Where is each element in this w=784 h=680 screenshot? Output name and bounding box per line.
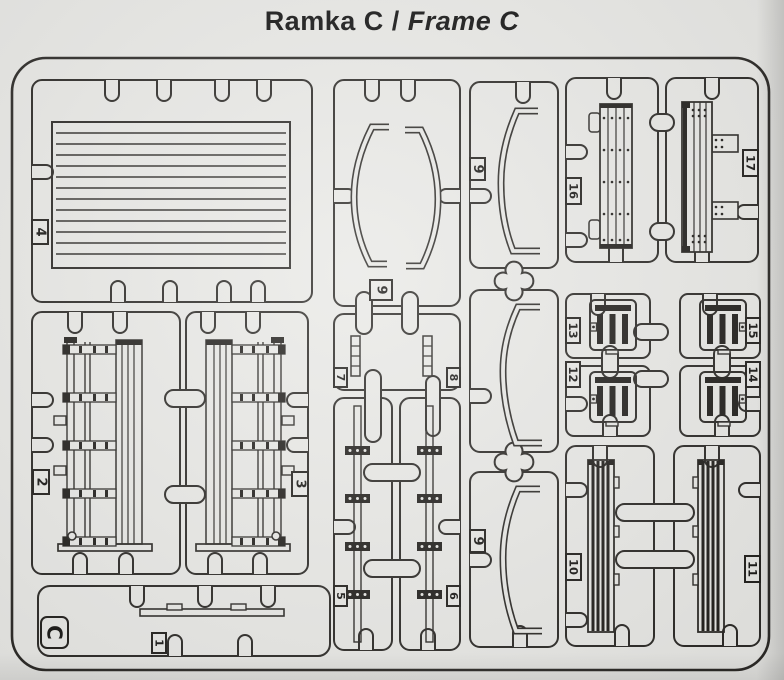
part-label-12: 12 [566,362,580,387]
page-title: Ramka C/Frame C [0,6,784,37]
part-4-louvered-panel [52,122,290,268]
part-label-17: 17 [743,150,758,176]
part-label-7: 7 [334,368,347,387]
part-8-small-strip [423,336,432,376]
instruction-sheet-page: Ramka C/Frame C [0,0,784,680]
part-label-11: 11 [745,556,760,582]
part-label-8: 8 [447,368,460,387]
part-9-bow-mid [503,307,542,443]
part-label-3: 3 [292,472,308,496]
part-label-9-bottom: 9 [470,530,485,552]
frame-letter-badge: C [41,617,68,648]
svg-text:17: 17 [744,155,758,171]
svg-text:9: 9 [470,164,485,173]
svg-text:8: 8 [447,374,460,382]
part-9-bow-bottom [503,489,542,631]
cell-parts-7-8 [334,314,460,390]
sprue-frame-outline [12,58,769,670]
part-label-2: 2 [33,470,49,494]
part-1-flat-strip [140,604,284,616]
svg-text:11: 11 [746,561,760,577]
svg-text:13: 13 [566,322,580,338]
cell-part-1 [38,586,330,656]
svg-text:1: 1 [153,639,166,647]
part-label-9-top: 9 [470,158,485,180]
part-label-1: 1 [152,633,166,653]
part-label-16: 16 [566,178,581,204]
svg-text:5: 5 [334,592,347,600]
svg-text:9: 9 [470,536,485,545]
svg-text:7: 7 [334,374,347,382]
svg-text:15: 15 [746,322,760,338]
part-label-4: 4 [32,220,48,244]
svg-text:9: 9 [374,285,389,294]
part-7-small-strip [351,336,360,376]
svg-text:14: 14 [746,366,760,382]
svg-text:10: 10 [567,559,581,575]
part-6-clamp-strip [417,406,442,642]
frame-title-pl: Ramka C [265,6,384,36]
frame-title-en: Frame C [408,6,520,36]
part-11-slatted-beam [693,460,724,632]
part-10-slatted-beam [588,460,619,632]
part-label-5: 5 [334,586,347,606]
part-17-beam [682,102,738,252]
part-label-14: 14 [746,362,760,387]
part-label-9-pair: 9 [370,280,392,300]
svg-text:2: 2 [34,477,49,486]
svg-text:6: 6 [447,592,460,600]
part-label-13: 13 [566,318,580,343]
part-label-15: 15 [746,318,760,343]
part-9-bow-top [501,111,540,251]
svg-text:3: 3 [293,479,308,488]
part-2-side-frame [54,337,152,551]
part-label-10: 10 [566,554,581,580]
svg-text:C: C [43,625,67,640]
svg-text:4: 4 [33,227,48,236]
part-16-beam [589,104,632,248]
part-9-bow-pair [354,127,438,266]
svg-text:12: 12 [566,366,580,382]
svg-text:16: 16 [567,183,581,199]
part-3-side-frame [196,337,294,551]
frame-title-separator: / [392,6,400,36]
part-label-6: 6 [447,586,460,606]
sprue-diagram: 4 2 3 1 C 9 7 [0,0,784,680]
